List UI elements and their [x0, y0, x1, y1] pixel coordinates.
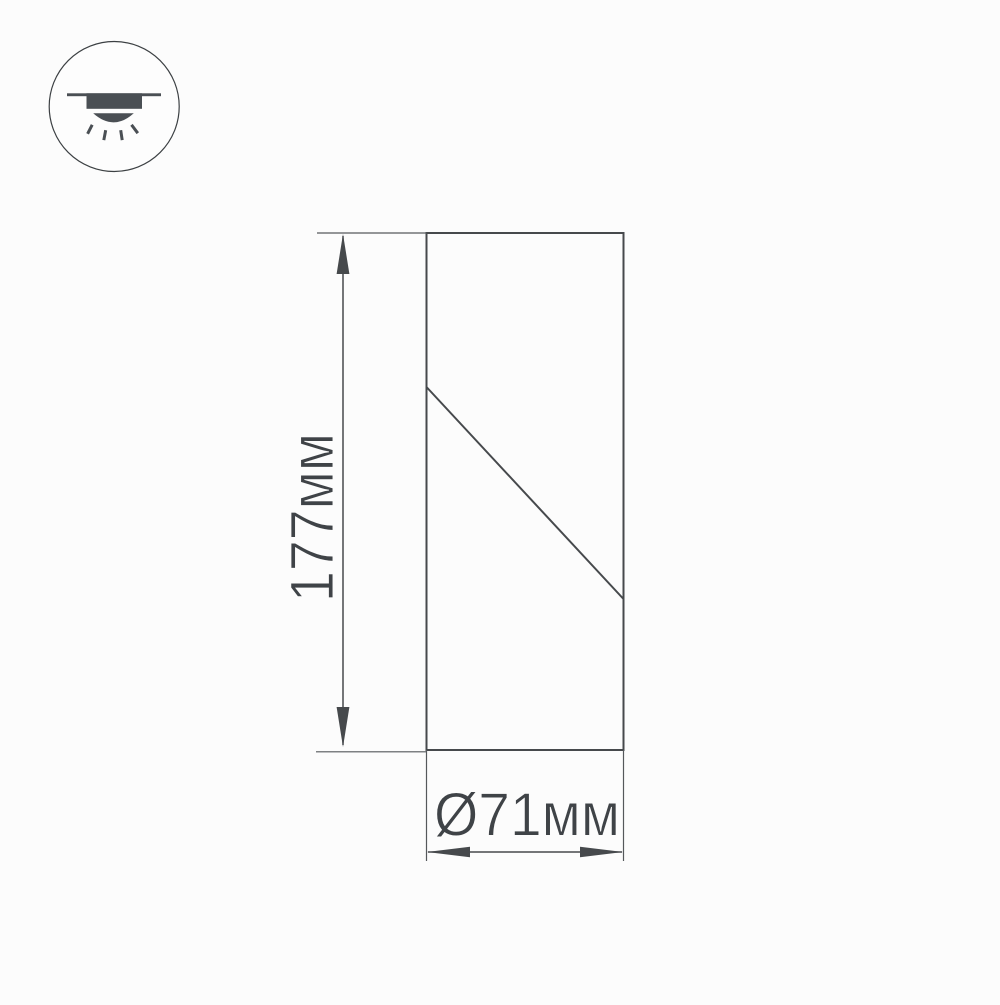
svg-text:Ø71мм: Ø71мм: [434, 781, 620, 849]
svg-text:177мм: 177мм: [278, 433, 346, 602]
